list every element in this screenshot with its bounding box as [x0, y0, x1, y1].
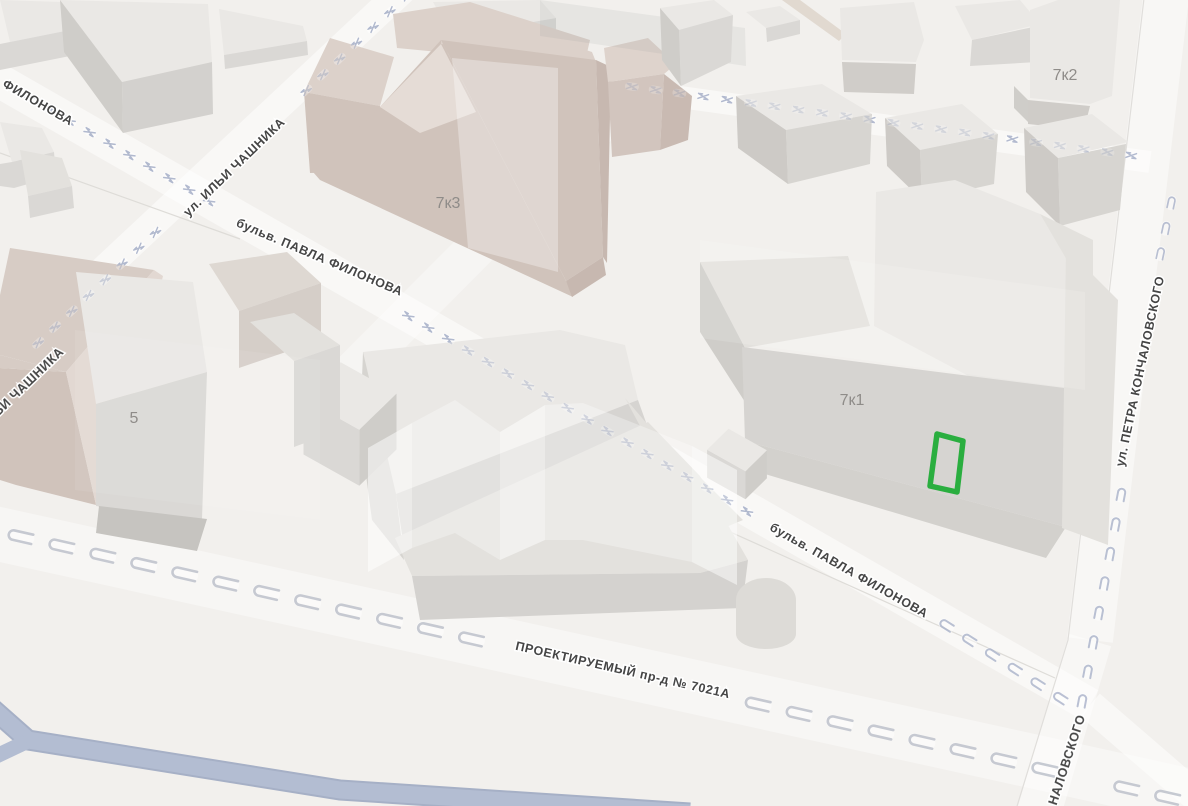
svg-text:7к1: 7к1	[840, 392, 865, 409]
svg-text:5: 5	[130, 410, 139, 427]
svg-text:7к3: 7к3	[436, 195, 461, 212]
svg-text:7к2: 7к2	[1053, 67, 1078, 84]
